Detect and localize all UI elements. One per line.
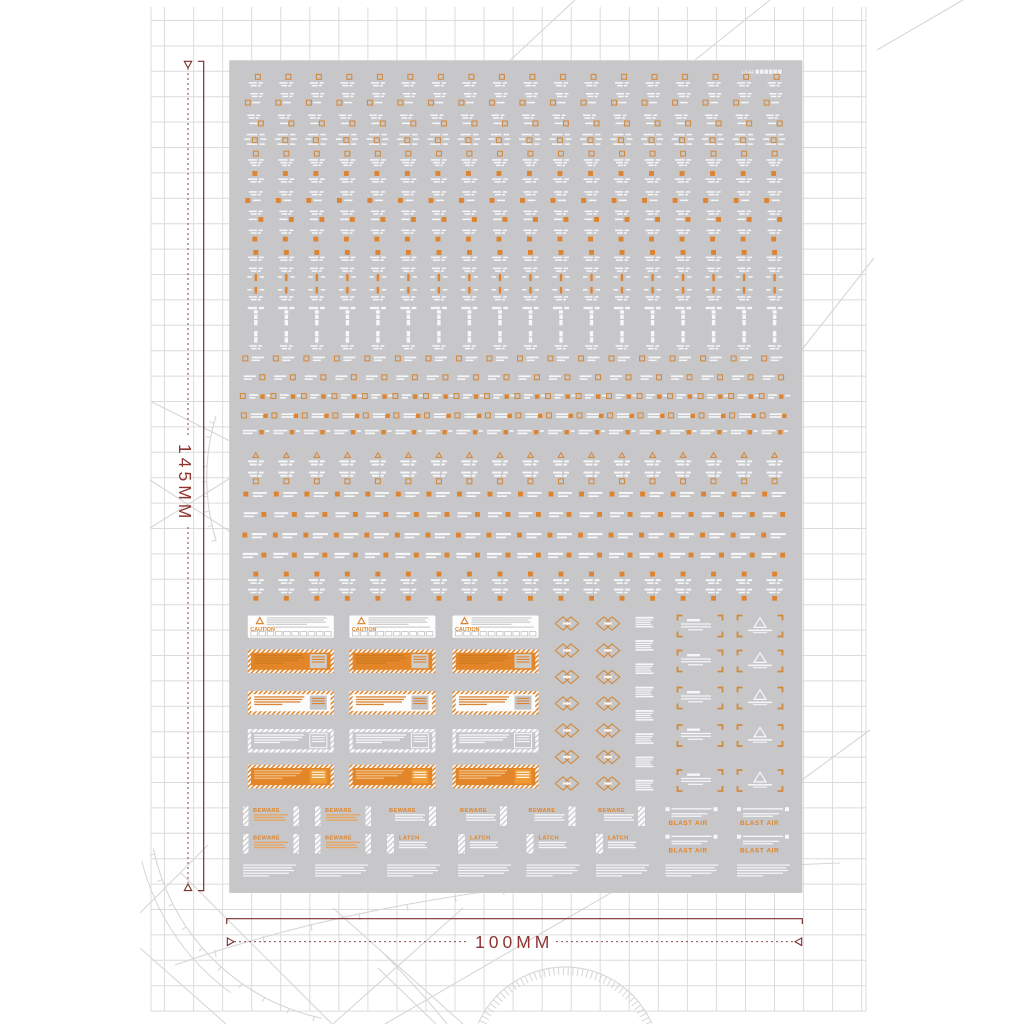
svg-text:1/144: 1/144 [741, 70, 754, 76]
svg-text:BEWARE: BEWARE [389, 808, 416, 814]
svg-text:BEWARE: BEWARE [598, 808, 625, 814]
svg-text:BEWARE: BEWARE [460, 808, 487, 814]
svg-text:LATCH: LATCH [399, 836, 420, 842]
svg-text:BEWARE: BEWARE [253, 836, 280, 842]
svg-text:145MM: 145MM [175, 444, 195, 522]
svg-text:BLAST AIR: BLAST AIR [669, 820, 708, 827]
svg-text:BLAST AIR: BLAST AIR [740, 848, 779, 855]
svg-text:LATCH: LATCH [470, 836, 491, 842]
svg-text:BLAST AIR: BLAST AIR [669, 848, 708, 855]
svg-text:BEWARE: BEWARE [529, 808, 556, 814]
svg-text:BEWARE: BEWARE [253, 808, 280, 814]
svg-text:LATCH: LATCH [539, 836, 560, 842]
svg-text:BEWARE: BEWARE [325, 808, 352, 814]
svg-text:BEWARE: BEWARE [325, 836, 352, 842]
svg-text:LATCH: LATCH [608, 836, 629, 842]
svg-text:BLAST AIR: BLAST AIR [740, 820, 779, 827]
svg-text:100MM: 100MM [475, 932, 553, 952]
